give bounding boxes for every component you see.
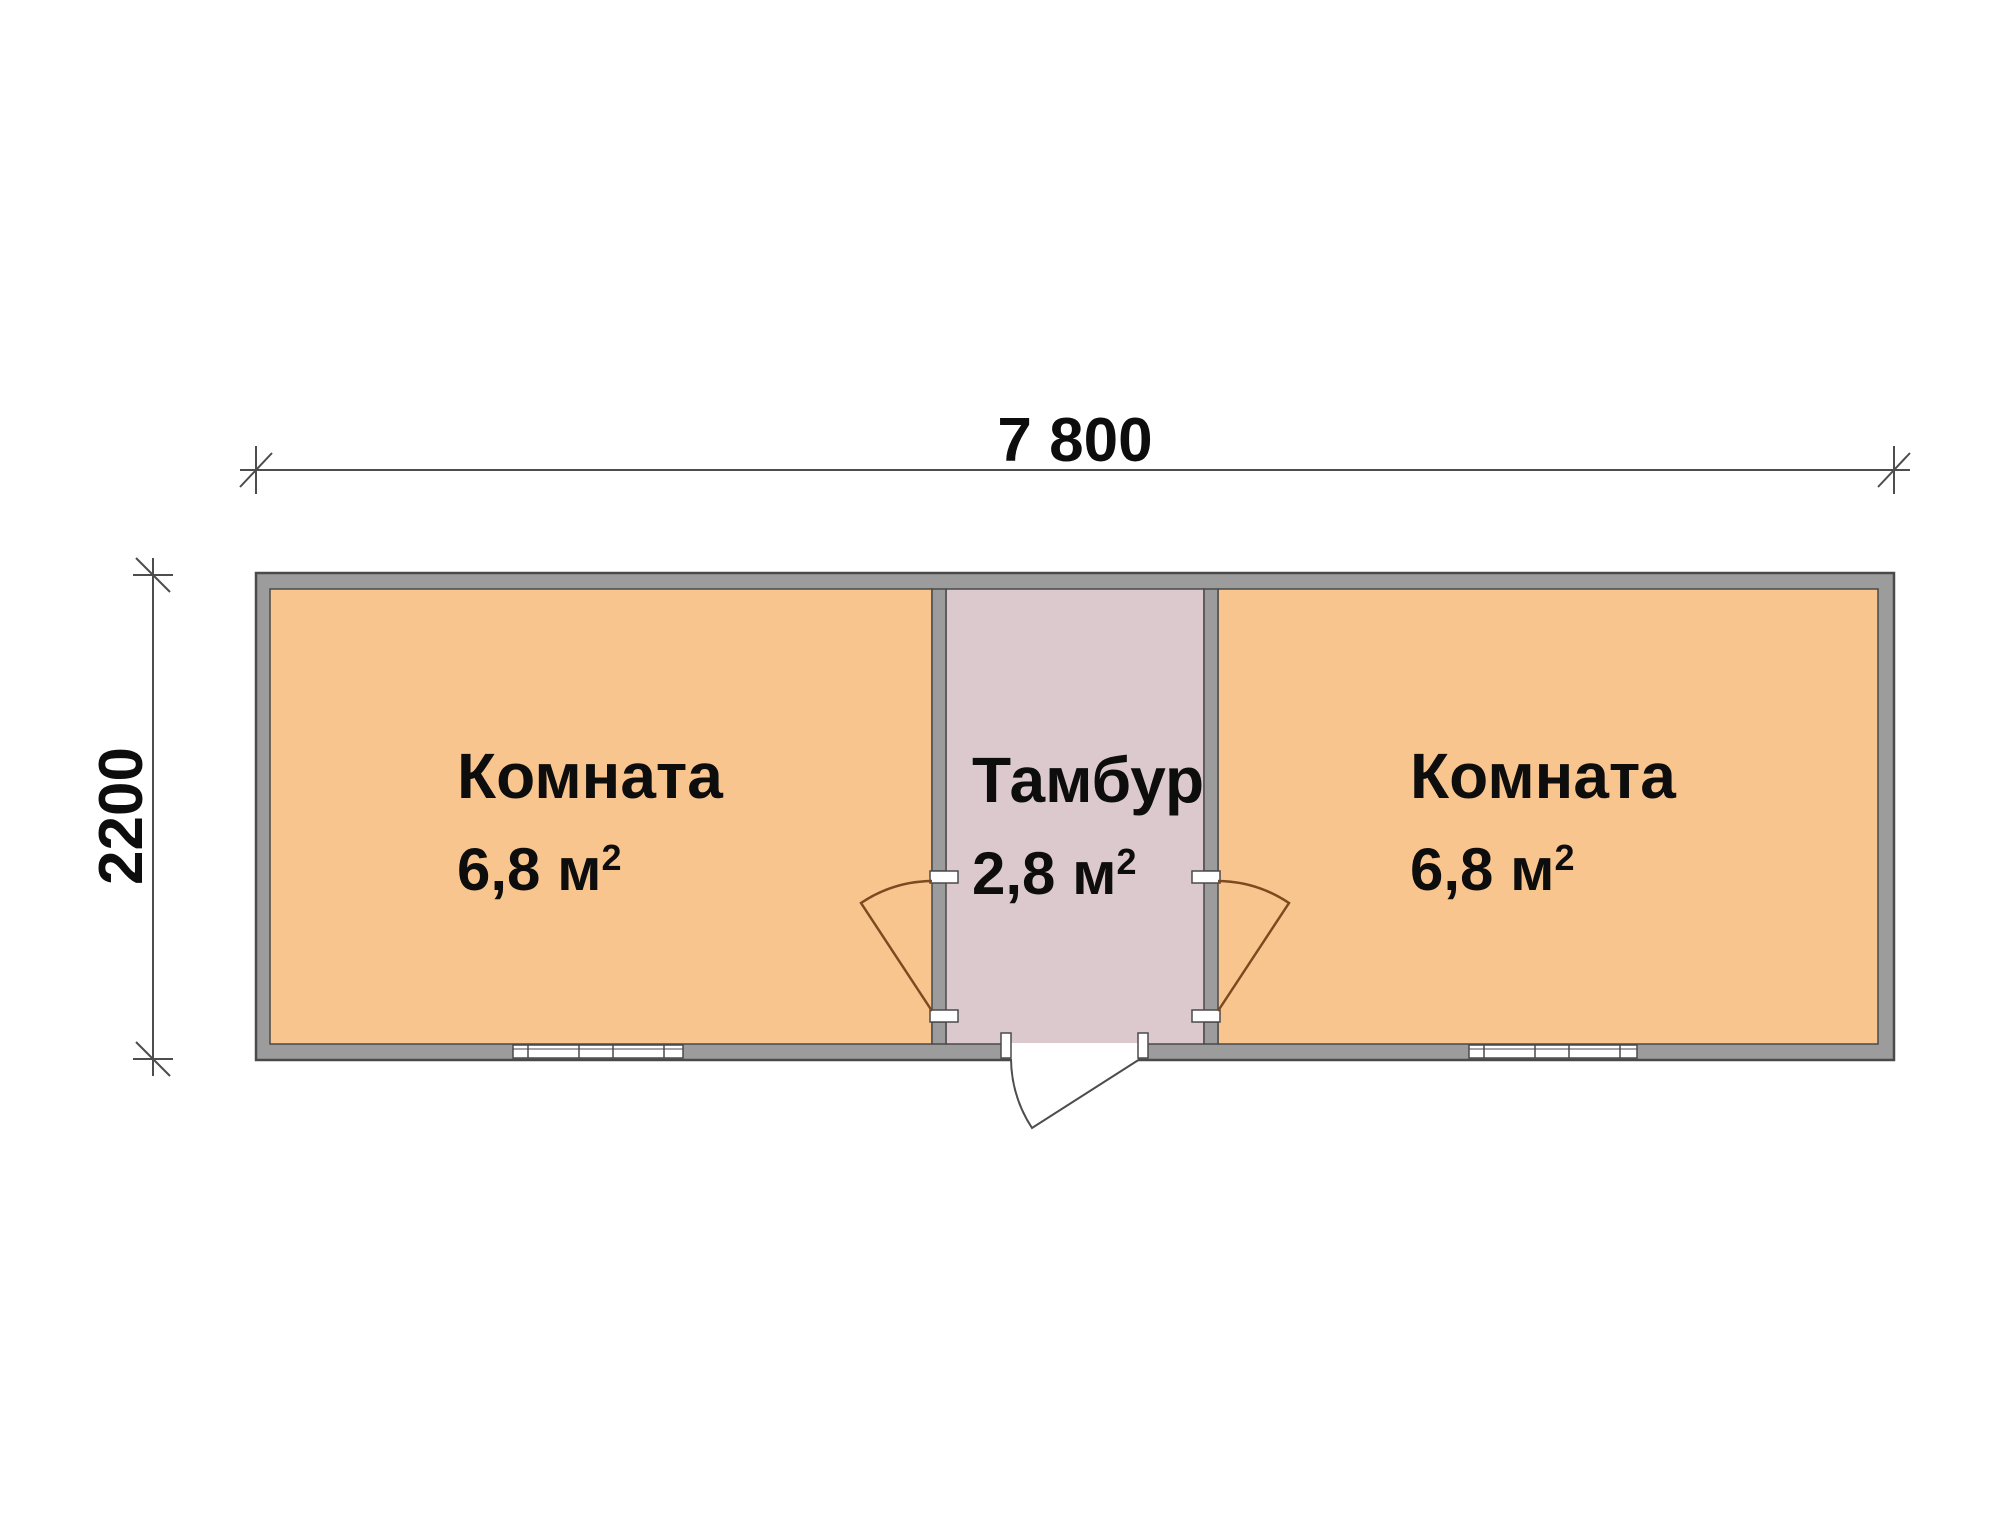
height-dimension-label: 2200 — [91, 516, 153, 1116]
right-partition-upper — [1204, 589, 1218, 871]
vestibule-area-sup: 2 — [1116, 841, 1136, 882]
vestibule-name: Тамбур — [972, 748, 1204, 812]
left-partition-upper — [932, 589, 946, 871]
vestibule-area-value: 2,8 м — [972, 840, 1116, 907]
room-right-area: 6,8 м2 — [1410, 840, 1676, 900]
entry-door-swing — [1011, 1059, 1140, 1128]
room-left-area-sup: 2 — [601, 837, 621, 878]
room-right-area-sup: 2 — [1554, 837, 1574, 878]
room-right-label-block: Комната 6,8 м2 — [1410, 744, 1676, 900]
left-partition-lower — [932, 1022, 946, 1044]
vestibule-area: 2,8 м2 — [972, 844, 1204, 904]
left-door-jamb-top — [930, 871, 958, 883]
width-dimension-label: 7 800 — [775, 410, 1375, 472]
room-left-name: Комната — [457, 744, 723, 808]
right-door-jamb-bottom — [1192, 1010, 1220, 1022]
room-right-area-value: 6,8 м — [1410, 836, 1554, 903]
room-right-name: Комната — [1410, 744, 1676, 808]
entry-door-opening — [1011, 1043, 1138, 1062]
left-window — [513, 1045, 683, 1058]
vestibule-label-block: Тамбур 2,8 м2 — [972, 748, 1204, 904]
floor-plan: 7 800 2200 Комната 6,8 м2 Тамбур 2,8 м2 … — [0, 0, 2000, 1539]
entry-door-jamb-left — [1001, 1033, 1011, 1058]
room-left-label-block: Комната 6,8 м2 — [457, 744, 723, 900]
room-left-area-value: 6,8 м — [457, 836, 601, 903]
entry-door-jamb-right — [1138, 1033, 1148, 1058]
right-partition-lower — [1204, 1022, 1218, 1044]
right-window — [1469, 1045, 1637, 1058]
left-door-jamb-bottom — [930, 1010, 958, 1022]
room-left-area: 6,8 м2 — [457, 840, 723, 900]
